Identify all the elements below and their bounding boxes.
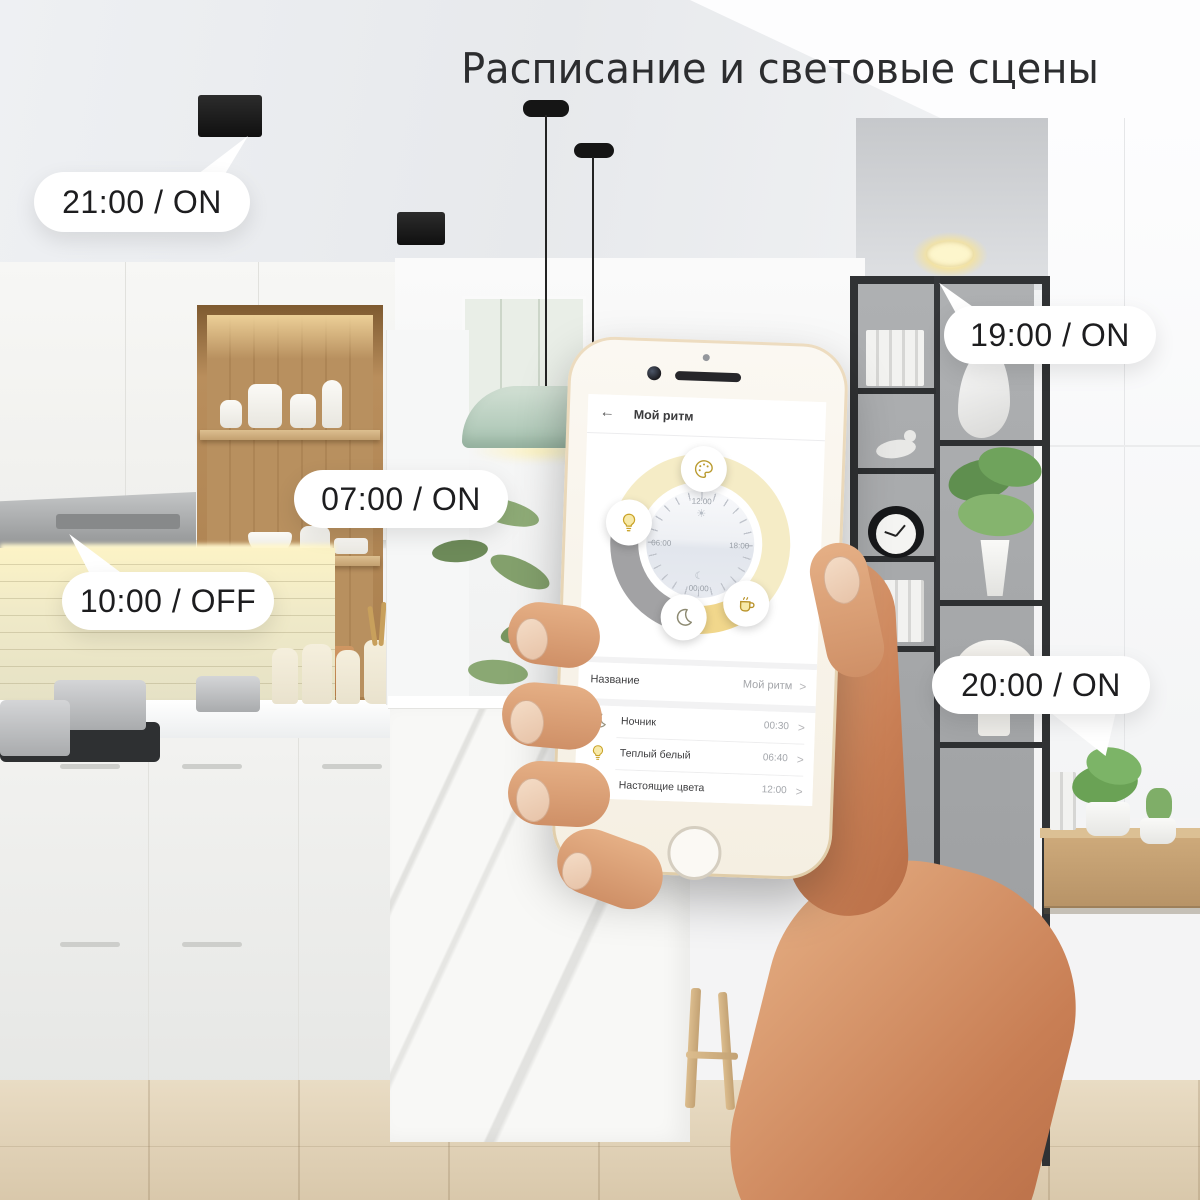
scene-button-night[interactable] (660, 594, 708, 642)
page-title: Расписание и световые сцены (433, 44, 1127, 93)
books (1050, 772, 1076, 830)
app-header: ← Мой ритм (587, 394, 826, 441)
plant-pot (1086, 802, 1130, 836)
back-arrow-icon[interactable]: ← (599, 403, 615, 421)
shelf (940, 440, 1042, 446)
cabinet-seam (258, 262, 259, 310)
vase (290, 394, 316, 428)
shelf (858, 468, 936, 474)
phone-screen: ← Мой ритм 12:00 ☀ 06:00 18:00 ☾ 00:00 (574, 394, 826, 806)
bird-figurine-head (904, 430, 916, 442)
jar (336, 650, 360, 704)
cabinet-seam (148, 738, 149, 1090)
callout-2000: 20:00 / ON (932, 656, 1150, 714)
chevron-right-icon: > (797, 752, 804, 766)
recessed-light (926, 241, 974, 267)
callout-label: 21:00 / ON (62, 184, 222, 221)
callout-1000: 10:00 / OFF (62, 572, 274, 630)
callout-label: 20:00 / ON (961, 667, 1121, 704)
chevron-right-icon: > (795, 784, 802, 798)
bulb-icon (618, 511, 641, 534)
chevron-right-icon: > (798, 720, 805, 734)
plate-stack (334, 538, 368, 554)
callout-0700: 07:00 / ON (294, 470, 508, 528)
chevron-right-icon: > (799, 680, 806, 694)
vase (322, 380, 342, 428)
teapot (220, 400, 242, 428)
palette-icon (692, 458, 715, 481)
drawer-handle (322, 764, 382, 769)
cactus (1146, 788, 1172, 822)
jar (302, 644, 332, 704)
cube-spotlight (397, 212, 445, 245)
scene-label: Ночник (621, 715, 656, 728)
vase (248, 384, 282, 428)
cup-icon (735, 592, 758, 615)
callout-label: 07:00 / ON (321, 481, 481, 518)
scene-button-evening[interactable] (722, 580, 770, 628)
moon-icon (672, 606, 695, 629)
bulb-icon (589, 743, 608, 762)
shelving-frame (850, 276, 1050, 284)
hood-controls (56, 514, 180, 529)
scene-time: 06:40 (763, 752, 788, 764)
sideboard (1044, 838, 1200, 908)
scene-time: 00:30 (764, 720, 789, 732)
callout-1900: 19:00 / ON (944, 306, 1156, 364)
name-row-label: Название (590, 673, 640, 687)
shelf (858, 388, 936, 394)
callout-2100: 21:00 / ON (34, 172, 250, 232)
app-title: Мой ритм (633, 408, 693, 424)
clock-label-evening: 18:00 (729, 541, 749, 551)
shelf-light-glow (207, 315, 373, 359)
callout-label: 19:00 / ON (970, 317, 1130, 354)
scene-label: Настоящие цвета (619, 779, 705, 794)
drawer-handle (60, 942, 120, 947)
frying-pan (0, 700, 70, 756)
scene-time: 12:00 (761, 784, 786, 796)
jar (272, 648, 298, 704)
drawer-handle (182, 764, 242, 769)
shelf-board (200, 430, 380, 440)
drawer-handle (60, 764, 120, 769)
cube-spotlight (198, 95, 262, 137)
shelf (940, 600, 1042, 606)
pendant-cord (592, 157, 594, 362)
plant-pot (1140, 818, 1176, 844)
steel-pot (196, 676, 260, 712)
cabinet-seam (1048, 445, 1200, 447)
schedule-dial: 12:00 ☀ 06:00 18:00 ☾ 00:00 (607, 451, 793, 637)
books (866, 330, 924, 386)
name-row-value: Мой ритм (743, 679, 793, 693)
drawer-handle (182, 942, 242, 947)
scene-label: Теплый белый (620, 747, 691, 761)
cabinet-seam (298, 738, 299, 1090)
clock-label-morning: 06:00 (651, 538, 671, 548)
pendant-mount (574, 143, 614, 158)
callout-label: 10:00 / OFF (80, 583, 256, 620)
sideboard-shadow (1044, 906, 1200, 914)
base-cabinets (0, 738, 445, 1090)
shelf (940, 742, 1042, 748)
promo-image: ← Мой ритм 12:00 ☀ 06:00 18:00 ☾ 00:00 (0, 0, 1200, 1200)
pendant-cord (545, 115, 547, 390)
